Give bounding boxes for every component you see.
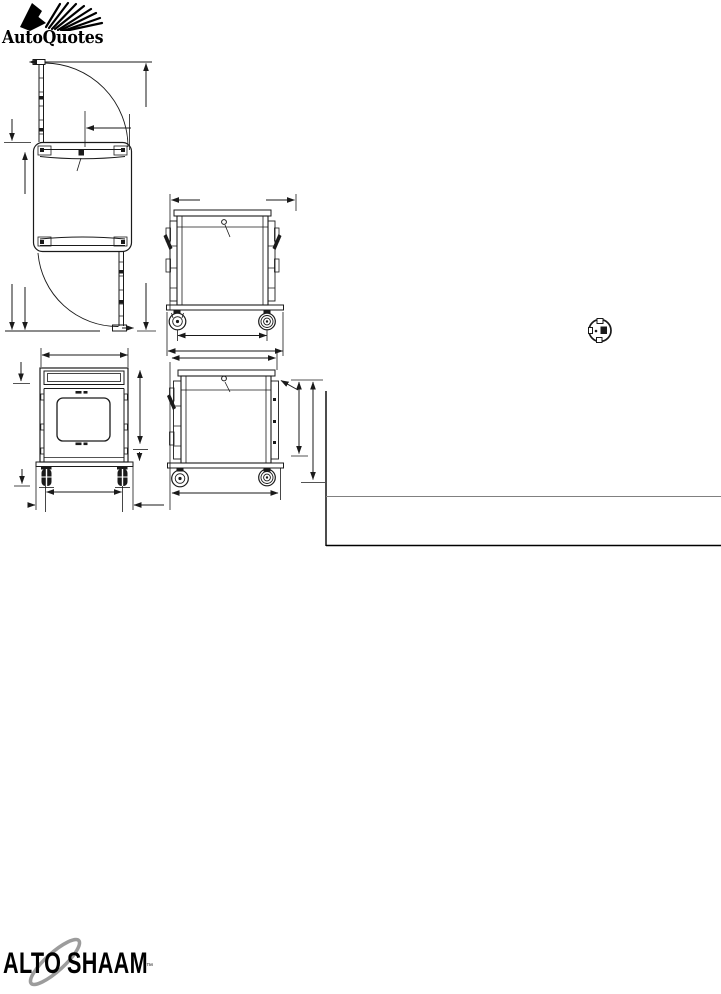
front-view-drawing: [13, 348, 164, 512]
plan-view-drawing: [4, 60, 156, 332]
side-view-rear-drawing: [167, 353, 325, 510]
power-plug-icon: [589, 319, 612, 343]
technical-drawings: [0, 0, 721, 994]
trademark-symbol: ™: [146, 963, 153, 970]
spec-table-frame: [326, 391, 721, 546]
side-view-drawing: [164, 194, 297, 356]
altoshaam-wordmark-shaam: SHAAM: [67, 947, 148, 981]
altoshaam-wordmark-alto: ALTO: [3, 947, 61, 981]
spec-sheet-page: AutoQuotes: [0, 0, 721, 994]
